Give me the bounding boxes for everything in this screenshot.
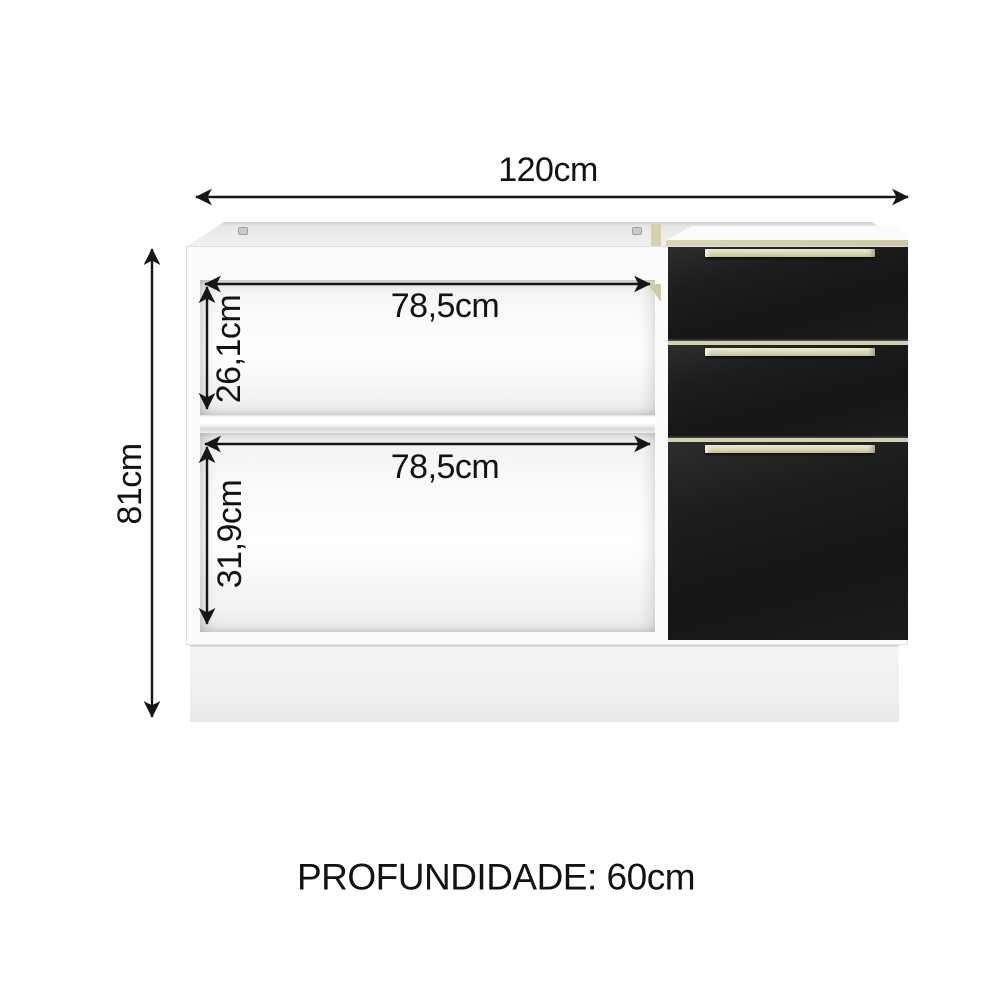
depth-dimension-label: PROFUNDIDADE: 60cm [297, 859, 695, 896]
cabinet-dimension-diagram: 120cm 81cm 78,5cm 26,1cm 78,5cm 31,9cm P… [0, 0, 1000, 1000]
upper-compartment-height-label: 26,1cm [212, 295, 246, 404]
drawer-1-handle [705, 249, 875, 257]
lower-compartment-height-label: 31,9cm [213, 480, 247, 589]
width-dimension-label: 120cm [498, 153, 598, 187]
height-dimension-label: 81cm [113, 443, 147, 524]
divider-panel-top-edge [651, 224, 661, 246]
corner-bracket-icon [632, 227, 642, 235]
drawer-2-handle [705, 348, 875, 356]
lower-compartment-width-label: 78,5cm [391, 450, 500, 484]
drawer-2 [668, 341, 908, 435]
drawer-3-handle [705, 445, 875, 453]
drawer-1 [668, 247, 908, 338]
corner-bracket-icon [238, 227, 248, 235]
drawer-3 [668, 438, 908, 640]
drawer-section-top-surface [664, 226, 908, 241]
cabinet-plinth-base [190, 645, 899, 722]
middle-shelf [200, 415, 655, 433]
upper-compartment-width-label: 78,5cm [391, 289, 500, 323]
